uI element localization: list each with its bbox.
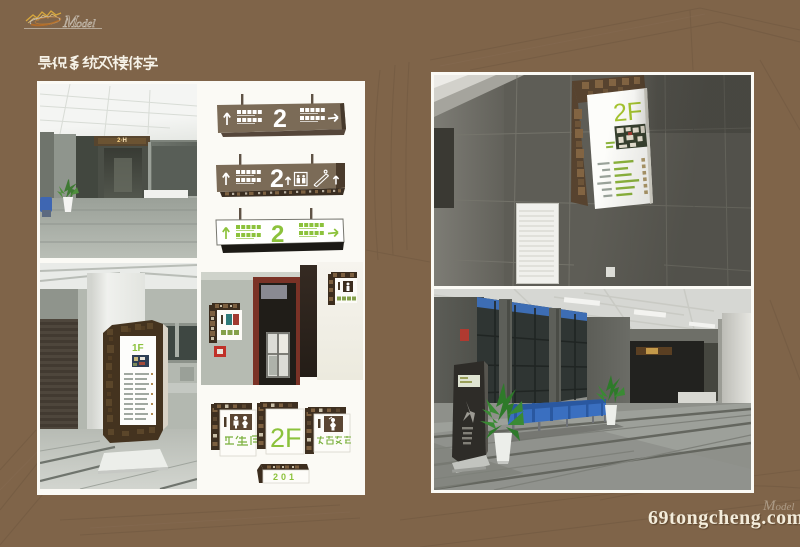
svg-text:2F: 2F (270, 423, 302, 453)
svg-text:1F: 1F (132, 343, 144, 354)
svg-text:2: 2 (270, 165, 284, 193)
svg-text:201: 201 (273, 472, 297, 482)
svg-text:2: 2 (273, 105, 287, 133)
